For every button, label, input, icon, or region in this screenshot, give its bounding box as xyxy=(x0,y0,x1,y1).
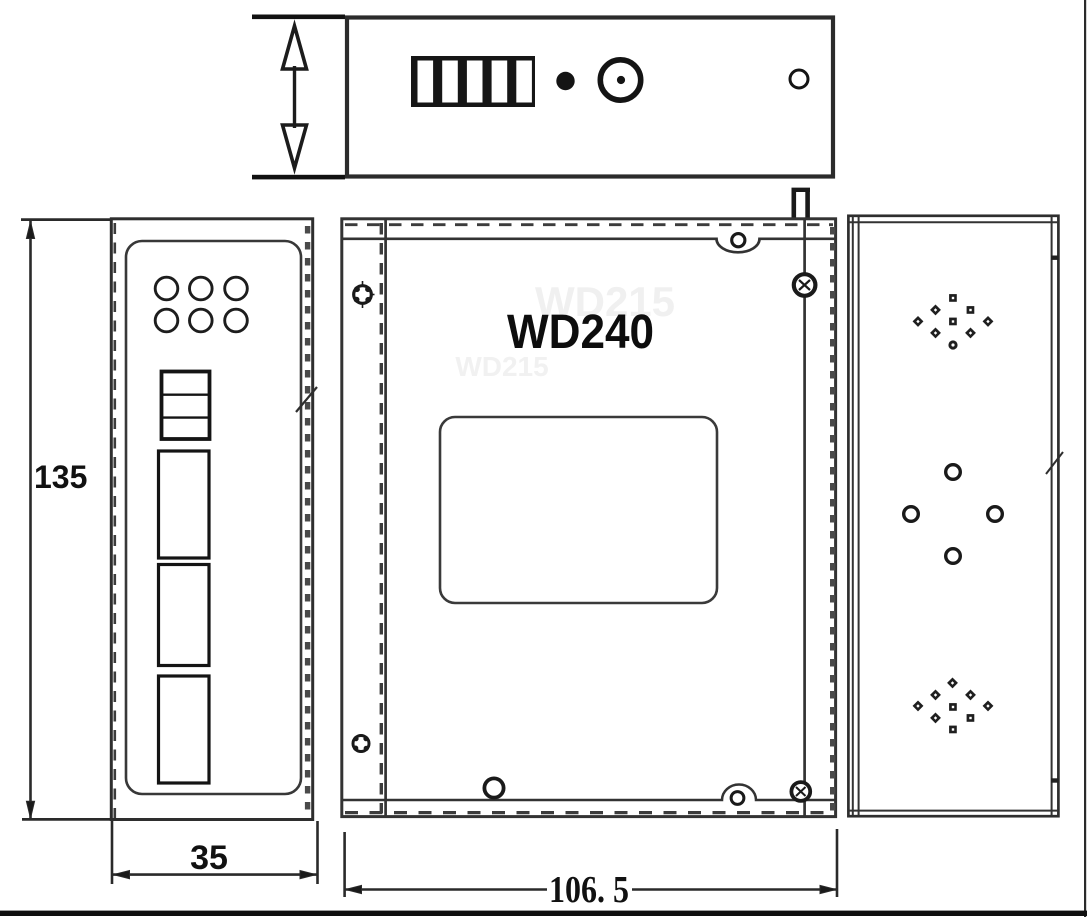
svg-text:WD240: WD240 xyxy=(507,306,654,359)
svg-text:135: 135 xyxy=(34,459,87,495)
svg-text:106. 5: 106. 5 xyxy=(549,869,629,911)
svg-text:35: 35 xyxy=(190,839,228,877)
